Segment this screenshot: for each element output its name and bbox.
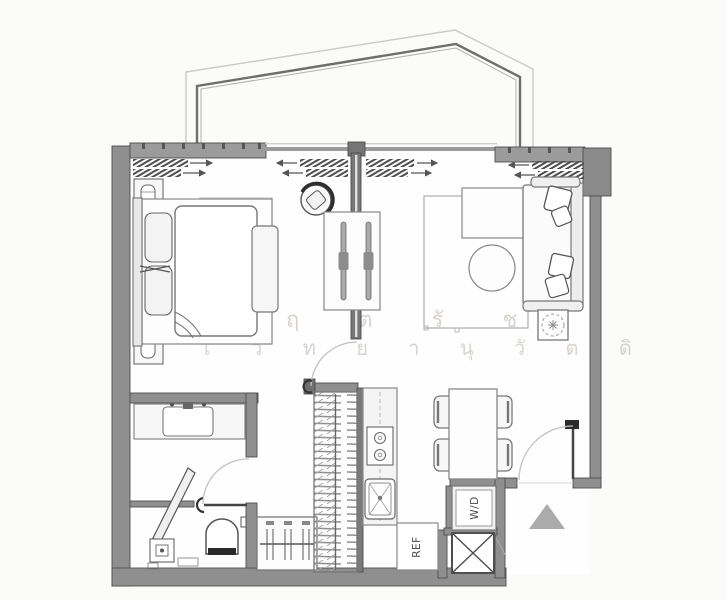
media-console xyxy=(324,212,380,310)
balcony-glass-line-2 xyxy=(265,143,497,144)
shaft-left-wall xyxy=(438,530,447,578)
lounge-chair xyxy=(301,183,333,215)
corner-column xyxy=(583,148,611,196)
door-handle xyxy=(565,420,579,429)
refrigerator: REF xyxy=(397,523,438,570)
washer-dryer-label: W/D xyxy=(469,496,481,520)
sofa-armrest-top xyxy=(531,177,580,187)
coffee-table xyxy=(469,245,515,291)
right-wall xyxy=(590,196,601,487)
bathroom-right-wall-lower xyxy=(246,503,257,568)
floor-plan-drawing: ป ฤ ต รั ช โ ว ท ย า นุ วั ต ดิ xyxy=(0,0,727,600)
pillow xyxy=(145,266,172,315)
balcony-glass-line xyxy=(265,147,497,151)
kitchen-sink xyxy=(365,479,395,519)
balcony-outline xyxy=(186,30,533,149)
bathroom-top-wall xyxy=(130,393,258,403)
floor-plan-canvas: ป ฤ ต รั ช โ ว ท ย า นุ วั ต ดิ xyxy=(0,0,727,600)
toilet-seat xyxy=(208,548,236,555)
entry-right-stub-wall xyxy=(573,478,601,488)
left-wall xyxy=(112,146,130,586)
living-table xyxy=(462,188,525,238)
bathroom-right-wall-upper xyxy=(246,393,257,457)
vanity xyxy=(134,402,245,439)
shower-partition xyxy=(130,501,194,507)
closet-top-wall xyxy=(314,383,358,392)
hanger-hooks xyxy=(266,521,310,525)
side-table-plant xyxy=(538,310,568,340)
pillow xyxy=(145,213,172,262)
bath-mat xyxy=(178,558,198,566)
closet-kitchen-wall xyxy=(357,388,363,572)
wardrobe-hangers xyxy=(257,517,317,570)
stove xyxy=(367,427,393,465)
sofa-back xyxy=(571,183,583,307)
duvet xyxy=(175,206,257,336)
sink-basin xyxy=(163,407,213,436)
refrigerator-label: REF xyxy=(411,536,423,557)
closet-hatched xyxy=(314,392,357,572)
sofa xyxy=(523,177,583,311)
bed-throw xyxy=(252,226,278,312)
washer-dryer: W/D xyxy=(452,486,496,530)
faucet-icon xyxy=(183,402,193,409)
dining-table xyxy=(449,389,497,479)
window-sill-left xyxy=(130,143,266,158)
